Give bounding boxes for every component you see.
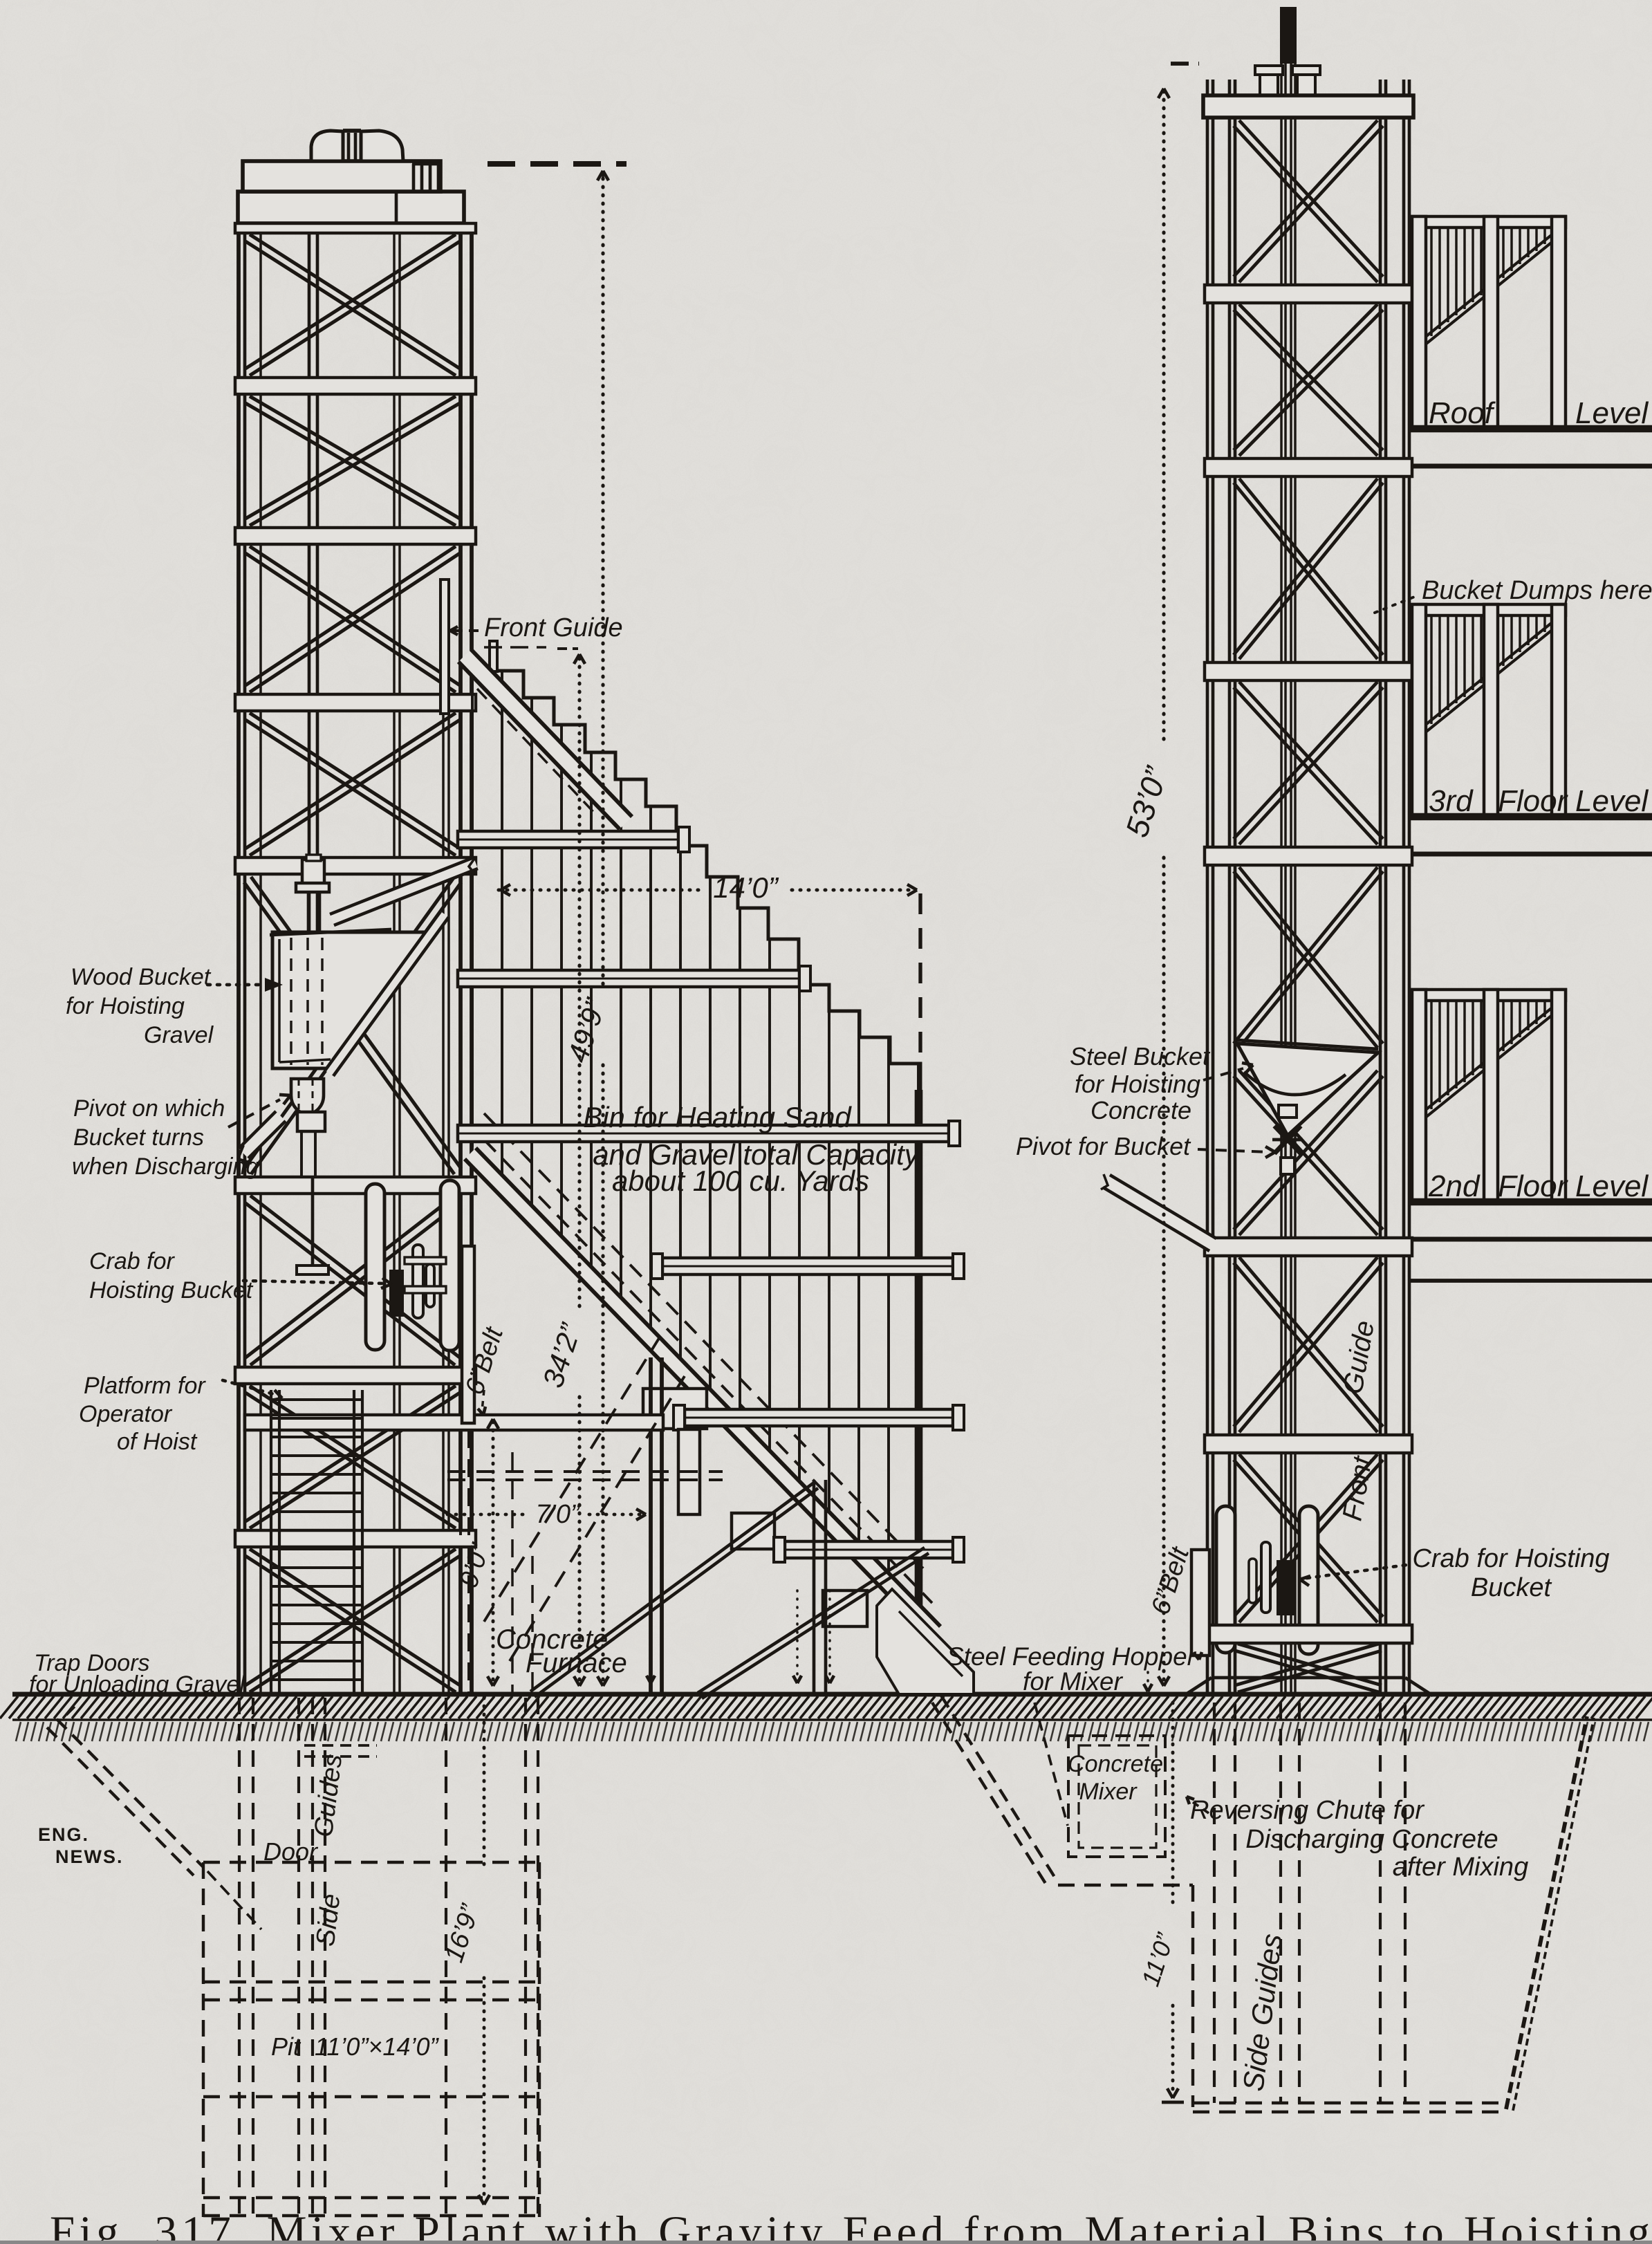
svg-text:of Hoist: of Hoist — [117, 1429, 198, 1455]
svg-text:2nd: 2nd — [1428, 1169, 1481, 1203]
svg-text:Mixer: Mixer — [1079, 1779, 1138, 1805]
svg-text:for Hoisting: for Hoisting — [66, 993, 185, 1019]
svg-text:Level: Level — [1575, 1169, 1649, 1203]
svg-text:Concrete: Concrete — [1068, 1751, 1163, 1777]
svg-text:Wood Bucket: Wood Bucket — [71, 964, 212, 990]
svg-text:Fig. 317. Mixer Plant with Gr: Fig. 317. Mixer Plant with Gravity Feed … — [50, 2207, 1650, 2241]
svg-text:Bucket turns: Bucket turns — [73, 1124, 204, 1151]
svg-text:Pivot for Bucket: Pivot for Bucket — [1016, 1132, 1191, 1160]
svg-text:11’0”×14’0”: 11’0”×14’0” — [315, 2032, 439, 2061]
svg-text:for Unloading Gravel: for Unloading Gravel — [29, 1671, 245, 1698]
svg-text:7’0”: 7’0” — [535, 1500, 581, 1529]
svg-text:Steel Feeding Hopper: Steel Feeding Hopper — [947, 1642, 1197, 1671]
svg-text:Furnace: Furnace — [526, 1648, 627, 1678]
svg-text:Hoisting Bucket: Hoisting Bucket — [89, 1277, 254, 1304]
svg-text:Front Guide: Front Guide — [484, 613, 623, 642]
svg-text:ENG.: ENG. — [38, 1824, 89, 1845]
svg-text:Operator: Operator — [79, 1401, 173, 1427]
svg-text:Level: Level — [1575, 784, 1649, 818]
svg-text:Bin for Heating Sand: Bin for Heating Sand — [583, 1101, 852, 1133]
svg-text:Pivot on which: Pivot on which — [73, 1095, 225, 1122]
svg-text:Crab for: Crab for — [89, 1248, 175, 1274]
svg-text:Discharging Concrete: Discharging Concrete — [1245, 1825, 1498, 1854]
svg-text:Pit: Pit — [271, 2032, 301, 2061]
svg-text:after Mixing: after Mixing — [1393, 1853, 1528, 1882]
svg-text:Crab for Hoisting: Crab for Hoisting — [1412, 1544, 1609, 1573]
svg-text:Level: Level — [1575, 396, 1649, 430]
svg-text:NEWS.: NEWS. — [55, 1846, 124, 1867]
svg-text:when Discharging: when Discharging — [72, 1153, 259, 1180]
svg-text:Gravel: Gravel — [144, 1022, 214, 1048]
svg-text:Door: Door — [263, 1837, 319, 1866]
svg-text:14’0”: 14’0” — [713, 871, 779, 904]
svg-text:Reversing Chute for: Reversing Chute for — [1190, 1796, 1424, 1825]
svg-text:Floor: Floor — [1498, 1169, 1569, 1203]
svg-text:Steel Bucket: Steel Bucket — [1070, 1042, 1211, 1070]
svg-text:for Hoisting: for Hoisting — [1075, 1070, 1200, 1098]
svg-text:Roof: Roof — [1429, 396, 1496, 430]
svg-text:Bucket Dumps here: Bucket Dumps here — [1422, 576, 1652, 605]
svg-text:Floor: Floor — [1498, 784, 1569, 818]
svg-text:about 100 cu. Yards: about 100 cu. Yards — [612, 1165, 869, 1197]
svg-text:for Mixer: for Mixer — [1023, 1667, 1124, 1696]
svg-text:Bucket: Bucket — [1471, 1573, 1552, 1602]
svg-text:Platform for: Platform for — [84, 1373, 206, 1399]
svg-text:Concrete: Concrete — [1090, 1096, 1191, 1124]
svg-text:3rd: 3rd — [1429, 784, 1474, 818]
